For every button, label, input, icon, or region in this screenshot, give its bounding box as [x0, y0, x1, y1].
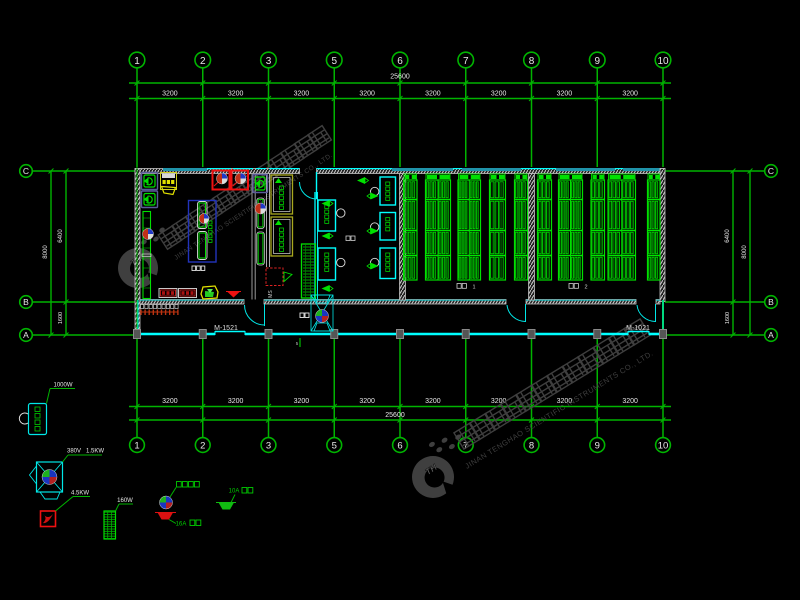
- svg-text:2: 2: [200, 56, 206, 67]
- svg-text:7: 7: [463, 56, 469, 67]
- svg-text:380V: 380V: [67, 449, 81, 455]
- svg-text:8: 8: [529, 441, 534, 452]
- svg-text:3200: 3200: [425, 398, 441, 405]
- svg-text:4.5KW: 4.5KW: [71, 491, 89, 497]
- svg-text:8: 8: [529, 56, 535, 67]
- svg-text:6: 6: [397, 441, 402, 452]
- svg-text:5: 5: [332, 441, 337, 452]
- svg-text:3200: 3200: [162, 398, 178, 405]
- svg-text:3200: 3200: [359, 91, 375, 98]
- svg-text:3200: 3200: [162, 91, 178, 98]
- svg-text:160W: 160W: [117, 498, 133, 504]
- svg-text:6400: 6400: [58, 229, 64, 243]
- svg-text:1000W: 1000W: [53, 383, 72, 389]
- svg-text:3200: 3200: [228, 398, 244, 405]
- svg-text:10: 10: [658, 441, 669, 452]
- svg-text:10A: 10A: [229, 489, 240, 495]
- svg-text:1.5KW: 1.5KW: [86, 449, 104, 455]
- svg-text:1: 1: [134, 441, 139, 452]
- svg-text:B: B: [768, 297, 774, 307]
- svg-text:9: 9: [594, 56, 600, 67]
- svg-text:C: C: [768, 166, 774, 176]
- svg-text:3200: 3200: [359, 398, 375, 405]
- svg-text:1600: 1600: [725, 312, 731, 324]
- svg-text:1: 1: [472, 285, 475, 291]
- svg-text:6: 6: [397, 56, 403, 67]
- svg-text:A: A: [23, 330, 29, 340]
- svg-text:3200: 3200: [622, 91, 638, 98]
- svg-text:M-1021: M-1021: [626, 325, 650, 332]
- svg-text:3200: 3200: [228, 91, 244, 98]
- svg-text:2: 2: [200, 441, 205, 452]
- svg-text:B: B: [23, 297, 29, 307]
- svg-text:8000: 8000: [742, 245, 748, 259]
- svg-text:C: C: [23, 166, 29, 176]
- svg-text:3: 3: [266, 56, 272, 67]
- svg-text:25600: 25600: [390, 74, 410, 81]
- svg-text:3200: 3200: [557, 91, 573, 98]
- svg-text:3200: 3200: [294, 398, 310, 405]
- svg-text:3200: 3200: [294, 91, 310, 98]
- svg-text:5: 5: [331, 56, 337, 67]
- svg-text:6400: 6400: [725, 229, 731, 243]
- svg-text:25600: 25600: [385, 412, 405, 419]
- svg-text:3: 3: [266, 441, 271, 452]
- svg-text:9: 9: [595, 441, 600, 452]
- svg-text:3200: 3200: [622, 398, 638, 405]
- svg-text:2: 2: [584, 285, 587, 291]
- svg-text:A: A: [768, 330, 774, 340]
- svg-text:M-1521: M-1521: [214, 325, 238, 332]
- svg-text:3200: 3200: [425, 91, 441, 98]
- svg-text:1600: 1600: [58, 312, 64, 324]
- svg-text:1: 1: [134, 56, 140, 67]
- svg-text:MS: MS: [268, 290, 274, 298]
- svg-text:10: 10: [657, 56, 669, 67]
- svg-text:16A: 16A: [176, 522, 187, 528]
- svg-text:8000: 8000: [43, 245, 49, 259]
- svg-text:3200: 3200: [491, 91, 507, 98]
